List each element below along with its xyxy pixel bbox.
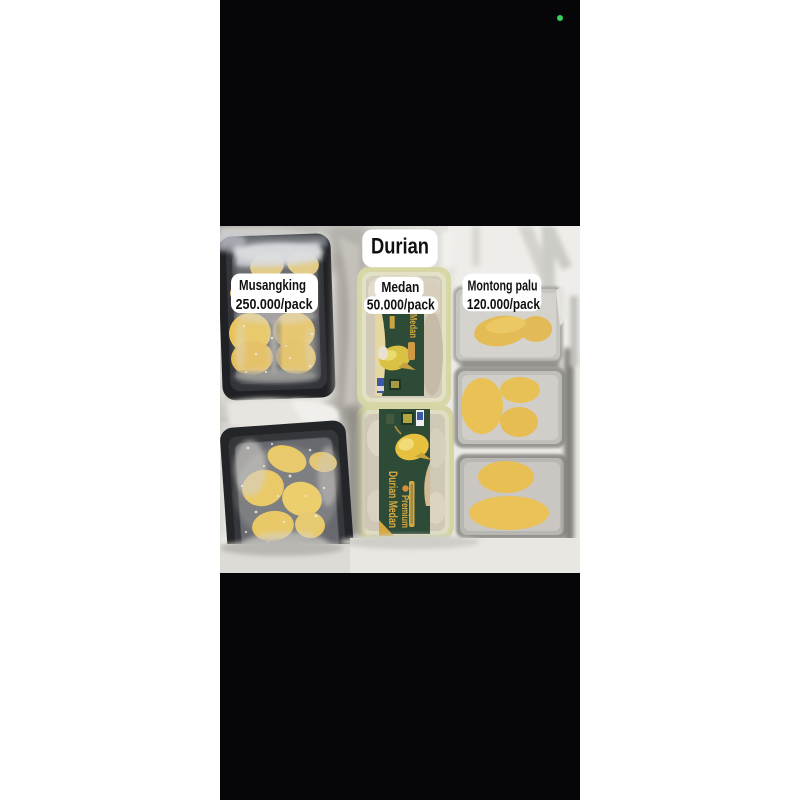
svg-text:Montong palu: Montong palu — [468, 278, 538, 295]
svg-text:Medan: Medan — [381, 279, 419, 296]
svg-text:Medan: Medan — [407, 314, 418, 338]
svg-text:Durian Medan: Durian Medan — [386, 471, 400, 528]
svg-text:120.000/pack: 120.000/pack — [467, 296, 541, 313]
svg-text:50.000/pack: 50.000/pack — [367, 296, 436, 313]
svg-text:250.000/pack: 250.000/pack — [236, 296, 314, 313]
svg-text:Durian: Durian — [371, 234, 429, 259]
svg-text:Musangking: Musangking — [239, 277, 306, 294]
